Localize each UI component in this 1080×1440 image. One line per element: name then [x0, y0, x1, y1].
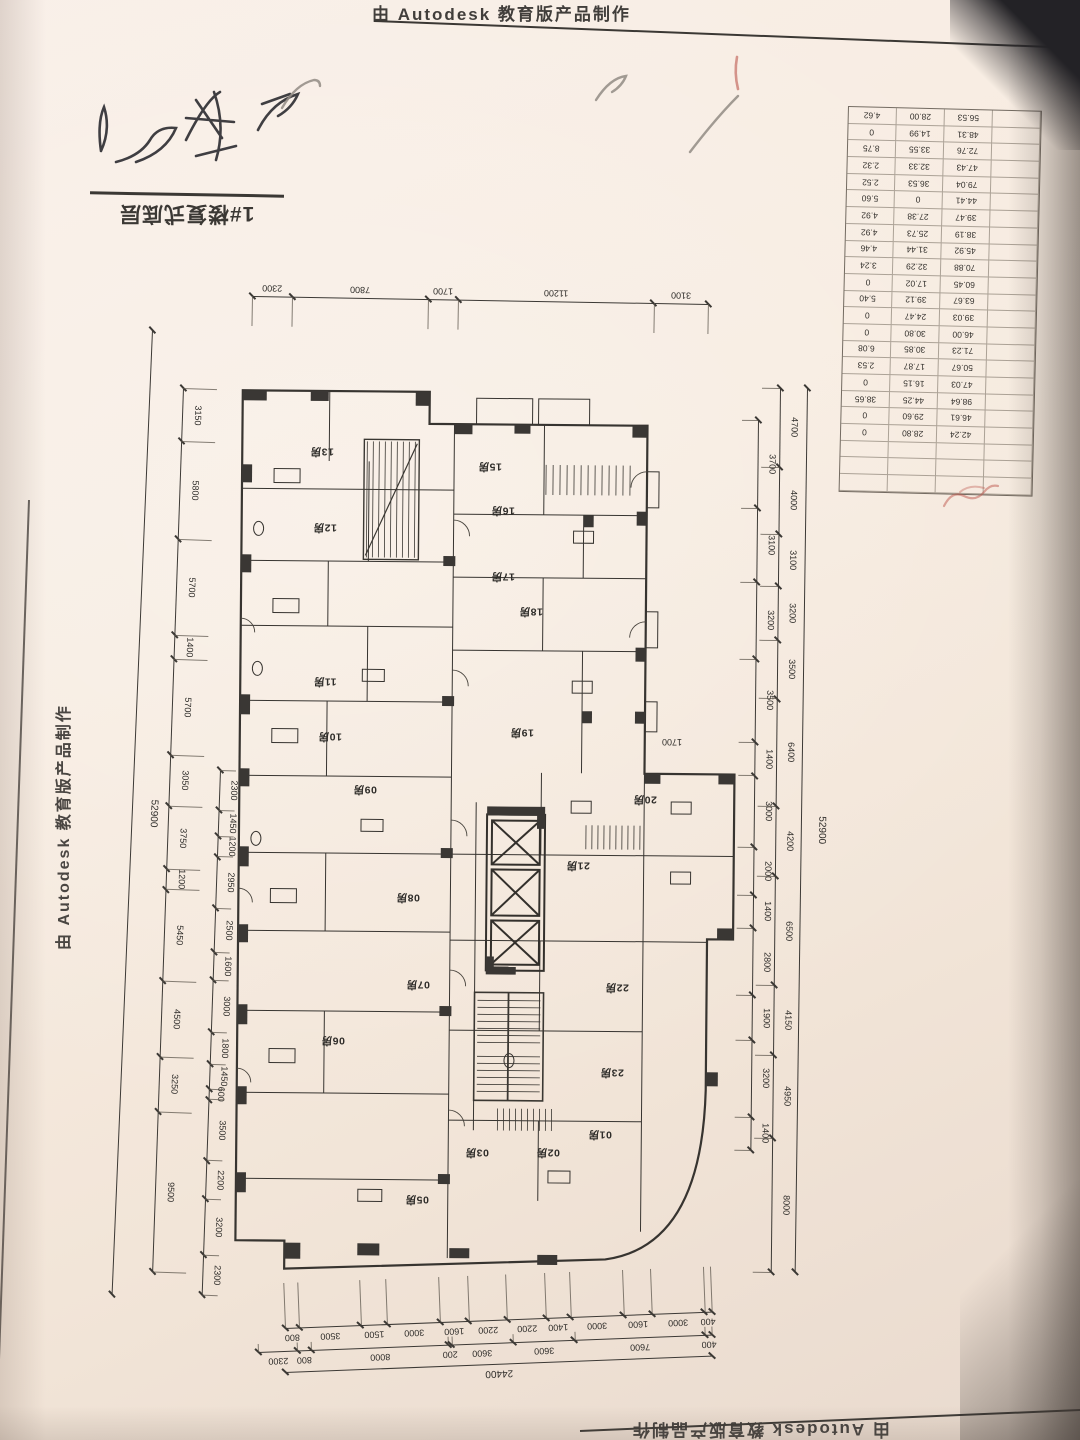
dim-label: 3150	[193, 405, 204, 425]
area-table-value: 4.92	[861, 227, 878, 237]
dim-label: 4000	[789, 490, 799, 510]
dim-label: 1400	[764, 749, 774, 769]
area-table-cell: 2.52	[847, 174, 895, 192]
area-table-cell: 79.04	[943, 176, 991, 194]
paper-sheet: 由 Autodesk 教育版产品制作 由 Autodesk 教育版产品制作 由 …	[0, 0, 1080, 1440]
area-table-cell: 24.47	[892, 308, 940, 326]
dim-label: 1800	[220, 1038, 231, 1058]
area-table-cell: 4.92	[846, 224, 894, 242]
dim-tick	[281, 1368, 289, 1375]
area-table-cell: 70.88	[941, 260, 989, 278]
area-table-value: 17.87	[903, 362, 925, 373]
area-table-value: 63.67	[953, 296, 975, 307]
dim-label: 2200	[215, 1170, 226, 1190]
dim-label: 3750	[178, 828, 189, 848]
area-table-value: 6.08	[858, 344, 875, 354]
area-table-value: 29.60	[902, 412, 924, 423]
dim-label: 1200	[227, 836, 238, 856]
dim-label: 7600	[630, 1342, 650, 1353]
area-table-value: 2.32	[863, 160, 880, 170]
area-table-cell: 46.61	[937, 410, 985, 428]
area-table-cell: 2.32	[847, 157, 895, 175]
area-table-cell	[888, 442, 936, 460]
area-table-cell	[840, 457, 888, 475]
area-table-value: 33.55	[909, 145, 931, 156]
title-underline	[90, 191, 284, 197]
dim-label: 3100	[767, 535, 777, 555]
dim-extension	[292, 297, 294, 327]
dim-extension	[178, 539, 212, 541]
drawing-title: 1#楼复式底层	[119, 200, 254, 230]
dim-extension	[162, 981, 196, 983]
area-table-cell: 6.08	[843, 341, 891, 359]
unit-label-15: 15房	[478, 460, 502, 475]
dim-extension	[711, 1327, 712, 1335]
area-table-cell: 17.02	[892, 275, 940, 293]
area-table-value: 5.60	[862, 194, 879, 204]
area-table-cell: 5.60	[847, 190, 895, 208]
dim-label: 7800	[350, 285, 370, 295]
dim-extension	[738, 847, 754, 848]
area-table-value: 45.92	[954, 246, 976, 257]
unit-label-23: 23房	[600, 1066, 624, 1081]
area-table-value: 0	[862, 427, 867, 437]
photo-of-floor-plan-sheet: 由 Autodesk 教育版产品制作 由 Autodesk 教育版产品制作 由 …	[0, 0, 1080, 1440]
area-table-value: 71.23	[952, 346, 974, 357]
area-table-cell: 32.29	[893, 258, 941, 276]
dim-extension	[705, 1327, 706, 1335]
dim-label: 8000	[781, 1195, 791, 1215]
dim-label: 3050	[180, 770, 191, 790]
dim-extension	[759, 639, 777, 640]
dim-label: 3500	[320, 1331, 340, 1342]
dim-label: 1400	[763, 902, 773, 922]
dim-extension	[758, 805, 776, 806]
dim-label: 6400	[786, 742, 796, 762]
plan-internal-dim: 1700	[662, 737, 682, 747]
area-table-value: 31.44	[906, 245, 928, 256]
dim-extension	[160, 1057, 194, 1059]
dim-label: 3200	[214, 1217, 225, 1237]
shadow-left-edge	[0, 0, 46, 1440]
dim-label: 6500	[784, 921, 794, 941]
dim-label: 2800	[762, 952, 772, 972]
dim-extension	[458, 300, 460, 330]
unit-label-11: 11房	[313, 675, 336, 690]
unit-label-18: 18房	[519, 605, 543, 620]
area-table-value: 5.40	[859, 294, 876, 304]
dim-label: 5800	[190, 480, 201, 500]
dim-extension	[737, 928, 753, 929]
unit-label-03: 03房	[465, 1146, 489, 1161]
dim-label: 5700	[183, 697, 194, 717]
dim-label: 1450	[228, 813, 239, 833]
area-table-cell: 42.24	[937, 426, 985, 444]
area-table-cell: 50.67	[938, 360, 986, 378]
area-table-value: 98.64	[951, 396, 973, 407]
dim-extension	[742, 420, 758, 421]
dim-label: 200	[442, 1349, 457, 1360]
area-table-cell: 98.64	[938, 393, 986, 411]
area-table-cell: 0	[842, 374, 890, 392]
area-table-value: 17.02	[905, 278, 927, 289]
area-table-value: 42.24	[950, 429, 972, 440]
dim-extension	[297, 1342, 298, 1350]
dim-extension	[311, 1342, 312, 1350]
unit-label-22: 22房	[605, 981, 629, 996]
area-table-cell: 39.47	[942, 209, 990, 227]
dim-extension	[258, 1344, 259, 1352]
area-table-cell: 4.62	[849, 107, 897, 125]
dim-extension	[753, 1272, 771, 1273]
dim-label: 1600	[444, 1326, 464, 1337]
area-table-cell: 71.23	[939, 343, 987, 361]
dim-extension	[762, 388, 780, 389]
unit-label-19: 19房	[510, 726, 534, 741]
dim-label: 400	[701, 1339, 716, 1350]
area-table-value: 38.65	[855, 394, 877, 405]
area-table-value: 32.29	[906, 261, 928, 272]
area-table-cell: 0	[895, 192, 943, 210]
dim-extension	[760, 586, 778, 587]
unit-label-10: 10房	[318, 730, 342, 745]
dim-label: 52900	[816, 816, 827, 844]
area-table-cell: 36.53	[895, 175, 943, 193]
dim-extension	[754, 1138, 772, 1139]
autodesk-watermark-left: 由 Autodesk 教育版产品制作	[50, 560, 76, 950]
dim-label: 400	[701, 1316, 716, 1327]
area-table-value: 39.12	[905, 295, 927, 306]
dim-label: 2300	[262, 283, 282, 293]
dim-label: 52900	[148, 799, 160, 827]
dim-extension	[165, 889, 199, 891]
dim-label: 4200	[785, 831, 795, 851]
dim-label: 8000	[370, 1352, 390, 1363]
autodesk-watermark-left-text: 由 Autodesk 教育版产品制作	[56, 704, 73, 950]
area-table-cell: 0	[844, 307, 892, 325]
dim-label: 4150	[783, 1010, 793, 1030]
unit-label-17: 17房	[491, 570, 515, 585]
area-table-cell: 33.55	[896, 142, 944, 160]
area-table-cell: 2.53	[842, 357, 890, 375]
area-table-cell: 63.67	[940, 293, 988, 311]
area-table-cell: 0	[848, 124, 896, 142]
area-table-value: 79.04	[956, 179, 978, 190]
area-table-cell: 0	[841, 407, 889, 425]
dim-extension	[653, 303, 655, 333]
dim-label: 1200	[177, 869, 188, 889]
area-table-value: 32.33	[908, 161, 930, 172]
area-table-cell: 38.65	[842, 391, 890, 409]
dim-extension	[574, 1332, 575, 1340]
area-table-cell: 5.40	[844, 291, 892, 309]
dim-extension	[755, 1055, 773, 1056]
area-table-cell: 4.46	[845, 240, 893, 258]
dim-tick	[108, 1290, 115, 1298]
dim-extension	[170, 754, 204, 756]
area-table-value: 30.80	[904, 328, 926, 339]
dim-extension	[738, 775, 754, 776]
area-table-cell: 30.85	[891, 342, 939, 360]
area-table-cell: 27.38	[894, 208, 942, 226]
dim-extension	[707, 304, 709, 334]
area-table-value: 0	[869, 127, 874, 137]
dim-label: 3250	[169, 1074, 180, 1094]
dim-line	[252, 296, 708, 305]
area-table-value: 27.38	[907, 211, 929, 222]
dim-line	[112, 330, 154, 1294]
dim-label: 2950	[226, 873, 237, 893]
area-table-cell: 16.15	[890, 375, 938, 393]
area-table-value: 0	[864, 327, 869, 337]
unit-label-02: 02房	[536, 1146, 560, 1161]
dim-extension	[741, 508, 757, 509]
area-table-cell	[888, 459, 936, 477]
unit-label-21: 21房	[566, 859, 590, 874]
dim-extension	[757, 876, 775, 877]
area-table-value: 16.15	[903, 378, 925, 389]
dim-label: 3600	[534, 1346, 554, 1357]
area-table-value: 38.19	[955, 229, 977, 240]
unit-label-07: 07房	[406, 978, 430, 993]
area-table-value: 4.92	[861, 210, 878, 220]
area-table-cell: 29.60	[889, 408, 937, 426]
area-table-value: 47.03	[951, 379, 973, 390]
dim-extension	[739, 658, 755, 659]
area-table-value: 46.00	[952, 329, 974, 340]
area-table-cell	[936, 476, 984, 494]
dim-label: 5450	[175, 925, 186, 945]
area-table-value: 39.03	[953, 313, 975, 324]
dim-extension	[513, 1334, 514, 1342]
dim-label: 800	[285, 1332, 300, 1343]
area-table-cell: 31.44	[893, 242, 941, 260]
dim-extension	[756, 985, 774, 986]
area-table-value: 50.67	[951, 363, 973, 374]
dim-label: 2200	[517, 1323, 537, 1334]
dim-label: 3000	[587, 1321, 607, 1332]
dim-extension	[174, 658, 208, 660]
area-table-cell: 39.12	[892, 292, 940, 310]
area-table-value: 46.61	[950, 413, 972, 424]
unit-label-20: 20房	[633, 793, 657, 808]
dim-label: 3500	[217, 1120, 228, 1140]
area-table-cell: 47.03	[938, 376, 986, 394]
dim-extension	[736, 995, 752, 996]
dim-label: 11200	[544, 288, 569, 298]
dim-label: 1700	[433, 286, 453, 296]
unit-label-06: 06房	[321, 1034, 345, 1049]
unit-label-01: 01房	[588, 1128, 612, 1143]
area-table-value: 24.47	[905, 312, 927, 323]
dim-label: 3500	[765, 690, 775, 710]
dim-label: 3000	[404, 1328, 424, 1339]
area-table-value: 2.52	[862, 177, 879, 187]
dim-label: 2200	[478, 1325, 498, 1336]
dim-extension	[739, 742, 755, 743]
dim-label: 3500	[787, 659, 797, 679]
area-table-value: 8.75	[863, 144, 880, 154]
area-table-value: 14.99	[909, 128, 931, 139]
area-table-cell: 8.75	[848, 140, 896, 158]
area-table-cell: 25.73	[894, 225, 942, 243]
area-table-value: 4.46	[861, 244, 878, 254]
area-table-cell: 28.80	[889, 425, 937, 443]
dim-extension	[740, 582, 756, 583]
area-table-value: 4.62	[864, 110, 881, 120]
area-table-value: 0	[866, 277, 871, 287]
area-table-cell: 44.25	[890, 392, 938, 410]
dim-label: 2300	[212, 1265, 223, 1285]
area-table-cell	[936, 460, 984, 478]
dim-label: 3600	[472, 1348, 492, 1359]
area-table-cell: 28.00	[897, 108, 945, 126]
area-table-cell: 44.41	[943, 193, 991, 211]
area-table-cell: 17.87	[890, 358, 938, 376]
dim-label: 4700	[789, 417, 799, 437]
dim-label: 2300	[268, 1356, 288, 1367]
area-table-cell: 45.92	[941, 243, 989, 261]
dim-label: 3000	[668, 1318, 688, 1329]
dim-line	[795, 388, 809, 1272]
area-table-cell: 32.33	[895, 158, 943, 176]
area-table-value: 0	[863, 377, 868, 387]
area-table-cell: 3.24	[845, 257, 893, 275]
dim-label: 800	[297, 1355, 312, 1366]
area-table-value: 70.88	[954, 263, 976, 274]
dim-label: 3200	[788, 603, 798, 623]
dim-label: 3000	[221, 996, 232, 1016]
dim-label: 3200	[761, 1068, 771, 1088]
dim-extension	[734, 1150, 750, 1151]
dim-label: 9500	[166, 1182, 177, 1202]
dim-extension	[152, 1271, 186, 1273]
dim-extension	[251, 296, 253, 326]
dim-label: 4500	[172, 1009, 183, 1029]
unit-label-08: 08房	[396, 891, 420, 906]
area-table-value: 30.85	[904, 345, 926, 356]
dim-label: 1450	[219, 1066, 230, 1086]
unit-label-13: 13房	[310, 445, 334, 460]
area-table-cell	[840, 474, 888, 492]
dim-label: 2300	[229, 780, 240, 800]
area-table-value: 44.25	[903, 395, 925, 406]
shadow-bottom-right-corner	[960, 1180, 1080, 1440]
dim-label: 1500	[364, 1329, 384, 1340]
dim-extension	[735, 1116, 751, 1117]
area-table-cell: 4.92	[846, 207, 894, 225]
area-table-value: 39.47	[955, 213, 977, 224]
dim-extension	[760, 534, 778, 535]
area-table-value: 28.80	[902, 428, 924, 439]
dim-label: 5700	[187, 577, 198, 597]
area-table-value: 2.53	[858, 360, 875, 370]
area-table-cell: 0	[841, 424, 889, 442]
area-table-cell	[936, 443, 984, 461]
dim-label: 1600	[223, 956, 234, 976]
dim-extension	[181, 441, 215, 443]
dim-extension	[761, 467, 779, 468]
area-table-cell: 0	[844, 274, 892, 292]
dim-label: 1400	[185, 637, 196, 657]
area-table-value: 44.41	[955, 196, 977, 207]
dim-extension	[158, 1111, 192, 1113]
dim-extension	[168, 806, 202, 808]
area-table-cell: 14.99	[896, 125, 944, 143]
area-table-cell: 46.00	[939, 326, 987, 344]
area-table-cell	[840, 441, 888, 459]
area-table-value: 28.00	[910, 111, 932, 122]
area-table-cell: 47.43	[943, 159, 991, 177]
area-table-value: 3.24	[860, 260, 877, 270]
dim-label: 3200	[766, 610, 776, 630]
dim-label: 3000	[764, 801, 774, 821]
unit-label-12: 12房	[313, 521, 337, 536]
area-table-cell	[888, 475, 936, 493]
dim-label: 1600	[628, 1319, 648, 1330]
dim-extension	[451, 1337, 452, 1345]
area-table-value: 36.53	[908, 178, 930, 189]
dim-label: 2500	[224, 920, 235, 940]
dim-extension	[737, 895, 753, 896]
area-table-value: 0	[865, 311, 870, 321]
unit-label-16: 16房	[491, 504, 515, 519]
dim-label: 1400	[548, 1322, 568, 1333]
unit-label-05: 05房	[405, 1193, 429, 1208]
dim-label: 3100	[671, 290, 691, 300]
title-block: 1#楼复式底层	[96, 200, 278, 244]
unit-label-09: 09房	[353, 783, 377, 798]
dim-tick	[791, 1268, 798, 1276]
dim-extension	[428, 299, 430, 329]
dim-extension	[735, 1040, 751, 1041]
area-table-cell: 39.03	[940, 310, 988, 328]
dim-label: 4950	[782, 1086, 792, 1106]
area-table-value: 0	[916, 195, 921, 205]
area-table-cell: 38.19	[942, 226, 990, 244]
dim-extension	[759, 698, 777, 699]
area-table-cell: 0	[843, 324, 891, 342]
dim-label: 24400	[485, 1367, 513, 1379]
area-table-value: 60.45	[953, 279, 975, 290]
area-table-value: 47.43	[956, 163, 978, 174]
dim-label: 1900	[762, 1008, 772, 1028]
dim-extension	[183, 388, 217, 390]
shadow-top-right-corner	[950, 0, 1080, 150]
shadow-bottom-edge	[0, 1406, 1080, 1440]
area-table-cell: 60.45	[940, 276, 988, 294]
area-table-value: 0	[862, 411, 867, 421]
dim-label: 3100	[788, 550, 798, 570]
area-table-cell: 30.80	[891, 325, 939, 343]
area-table-value: 25.73	[907, 228, 929, 239]
